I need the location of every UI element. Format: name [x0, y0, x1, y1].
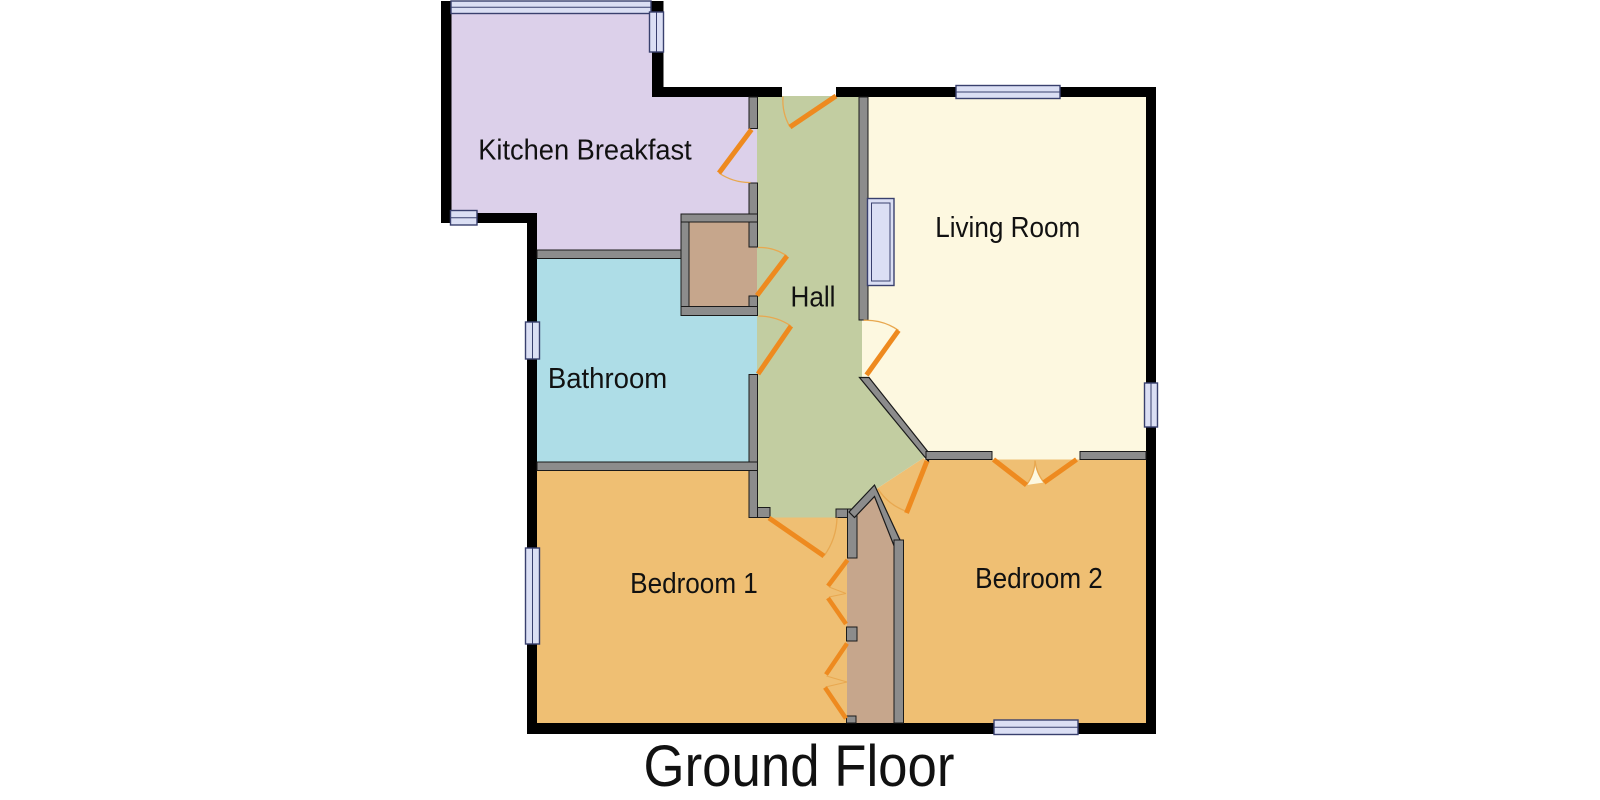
svg-text:Bedroom 1: Bedroom 1 [630, 567, 758, 600]
svg-text:Kitchen Breakfast: Kitchen Breakfast [478, 134, 692, 166]
svg-text:Hall: Hall [791, 280, 836, 313]
svg-text:Living Room: Living Room [935, 211, 1080, 244]
svg-text:Bedroom 2: Bedroom 2 [975, 562, 1103, 595]
svg-text:Bathroom: Bathroom [548, 361, 667, 394]
svg-text:Ground Floor: Ground Floor [644, 734, 955, 799]
